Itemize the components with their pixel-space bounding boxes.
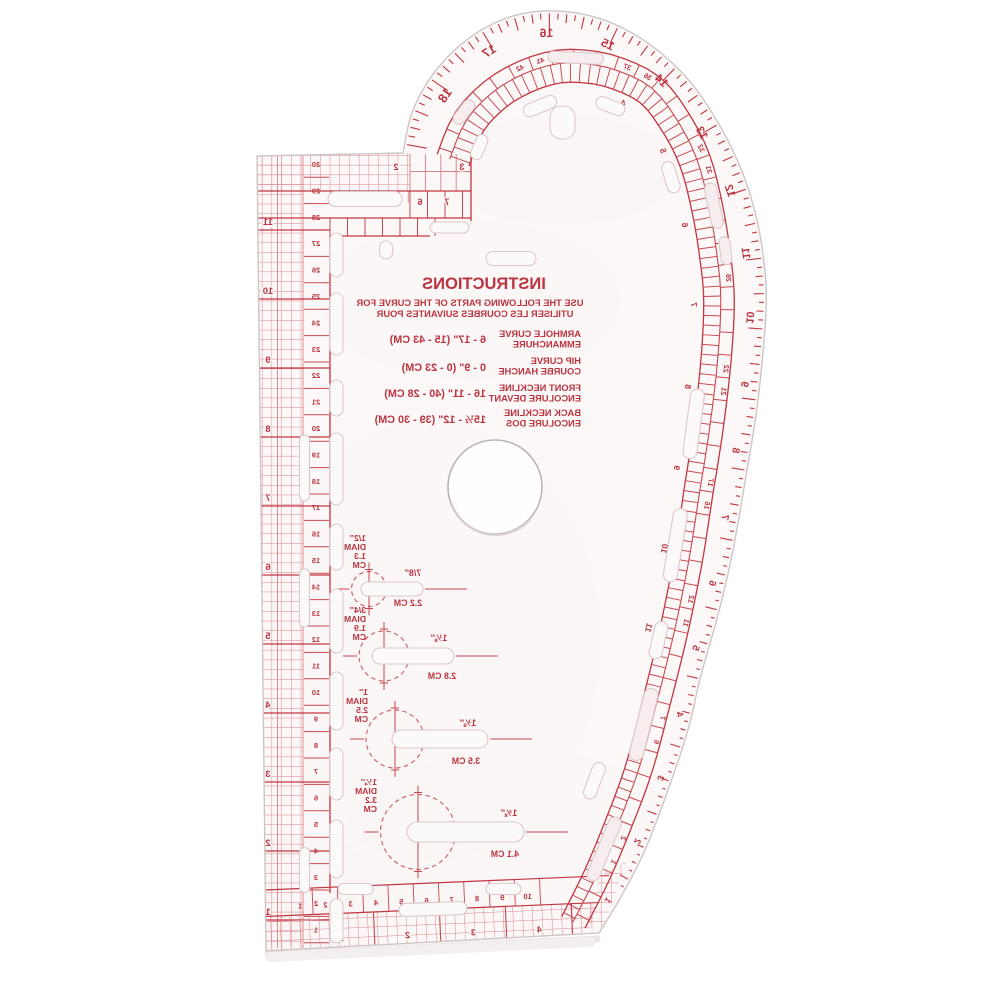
svg-text:18: 18: [312, 477, 320, 486]
svg-text:7: 7: [265, 493, 270, 504]
svg-text:8: 8: [265, 424, 270, 435]
svg-text:10: 10: [263, 286, 274, 297]
svg-text:23: 23: [312, 345, 320, 354]
svg-text:1⅝″: 1⅝″: [500, 808, 517, 818]
svg-text:14: 14: [311, 582, 320, 591]
svg-text:COURBE HANCHE: COURBE HANCHE: [498, 367, 581, 377]
svg-text:8: 8: [314, 741, 318, 750]
svg-text:6 - 17" (15 - 43 CM): 6 - 17" (15 - 43 CM): [389, 334, 486, 346]
svg-text:CM: CM: [364, 804, 377, 814]
svg-text:20: 20: [312, 424, 320, 433]
svg-text:UTILISER LES COURBES SUIVANTES: UTILISER LES COURBES SUIVANTES POUR: [376, 309, 573, 319]
svg-text:3: 3: [471, 927, 476, 937]
svg-text:6: 6: [417, 197, 422, 207]
svg-text:EMMANCHURE: EMMANCHURE: [513, 340, 581, 350]
svg-text:2: 2: [405, 930, 410, 940]
svg-text:1⅛″: 1⅛″: [430, 633, 447, 643]
svg-text:26: 26: [724, 273, 734, 282]
svg-text:6: 6: [265, 562, 270, 573]
svg-text:CM: CM: [353, 560, 366, 570]
svg-text:9: 9: [265, 355, 270, 366]
svg-text:27: 27: [312, 239, 320, 248]
svg-text:8: 8: [475, 894, 480, 903]
svg-text:BACK NECKLINE: BACK NECKLINE: [504, 408, 581, 418]
svg-text:7: 7: [314, 767, 318, 776]
svg-text:25: 25: [311, 292, 320, 301]
svg-text:7: 7: [689, 302, 699, 307]
svg-text:FRONT NECKLINE: FRONT NECKLINE: [499, 383, 581, 393]
svg-text:1⅜″: 1⅜″: [459, 718, 476, 728]
svg-text:22: 22: [721, 364, 731, 373]
svg-text:15½ - 12" (39 - 30 CM): 15½ - 12" (39 - 30 CM): [374, 414, 486, 426]
svg-text:INSTRUCTIONS: INSTRUCTIONS: [422, 275, 546, 293]
svg-text:ENCOLURE DOS: ENCOLURE DOS: [506, 419, 581, 429]
svg-text:CM: CM: [353, 632, 366, 642]
svg-text:12: 12: [312, 635, 320, 644]
svg-text:11: 11: [262, 217, 273, 228]
svg-text:15: 15: [311, 556, 320, 565]
svg-text:21: 21: [311, 398, 320, 407]
svg-text:19: 19: [312, 450, 320, 459]
svg-text:4.1 CM: 4.1 CM: [491, 849, 519, 859]
svg-text:24: 24: [311, 318, 320, 327]
svg-text:3: 3: [459, 162, 464, 172]
svg-text:17: 17: [706, 478, 716, 487]
svg-text:0 - 9" (0 - 23 CM): 0 - 9" (0 - 23 CM): [401, 362, 486, 374]
svg-text:10: 10: [523, 892, 532, 901]
svg-text:28: 28: [312, 213, 320, 222]
svg-text:4: 4: [537, 924, 542, 934]
svg-text:3: 3: [265, 769, 270, 780]
svg-text:5: 5: [265, 631, 271, 642]
svg-text:11: 11: [311, 662, 320, 671]
svg-text:USE THE FOLLOWING PARTS OF THE: USE THE FOLLOWING PARTS OF THE CURVE FOR: [356, 298, 583, 308]
svg-text:7: 7: [444, 197, 449, 207]
svg-text:16: 16: [702, 501, 712, 510]
svg-text:10: 10: [743, 311, 756, 324]
svg-text:ARMHOLE CURVE: ARMHOLE CURVE: [499, 329, 581, 339]
svg-text:3: 3: [314, 873, 318, 882]
svg-text:2: 2: [393, 162, 398, 172]
svg-text:7/8″: 7/8″: [404, 568, 421, 578]
svg-text:HIP CURVE: HIP CURVE: [531, 356, 581, 366]
svg-text:2: 2: [265, 838, 270, 849]
svg-text:4: 4: [265, 700, 271, 711]
svg-text:CM: CM: [355, 714, 368, 724]
svg-text:13: 13: [312, 609, 320, 618]
svg-text:22: 22: [312, 371, 320, 380]
svg-text:16: 16: [312, 530, 320, 539]
svg-text:3: 3: [348, 899, 353, 908]
svg-text:11: 11: [739, 247, 753, 260]
svg-text:16 - 11" (40 - 28 CM): 16 - 11" (40 - 28 CM): [384, 388, 486, 400]
svg-text:21: 21: [719, 387, 729, 396]
svg-text:9: 9: [314, 714, 318, 723]
svg-text:2.2 CM: 2.2 CM: [394, 598, 422, 608]
svg-text:2: 2: [323, 900, 328, 909]
svg-text:2: 2: [314, 899, 318, 908]
svg-text:2.8 CM: 2.8 CM: [428, 671, 456, 681]
svg-text:17: 17: [312, 503, 320, 512]
svg-text:10: 10: [312, 688, 320, 697]
svg-text:ENCOLURE DEVANT: ENCOLURE DEVANT: [488, 394, 581, 404]
svg-text:16: 16: [539, 26, 553, 40]
svg-text:6: 6: [314, 794, 318, 803]
svg-text:26: 26: [312, 266, 320, 275]
svg-text:3.5 CM: 3.5 CM: [452, 756, 480, 766]
